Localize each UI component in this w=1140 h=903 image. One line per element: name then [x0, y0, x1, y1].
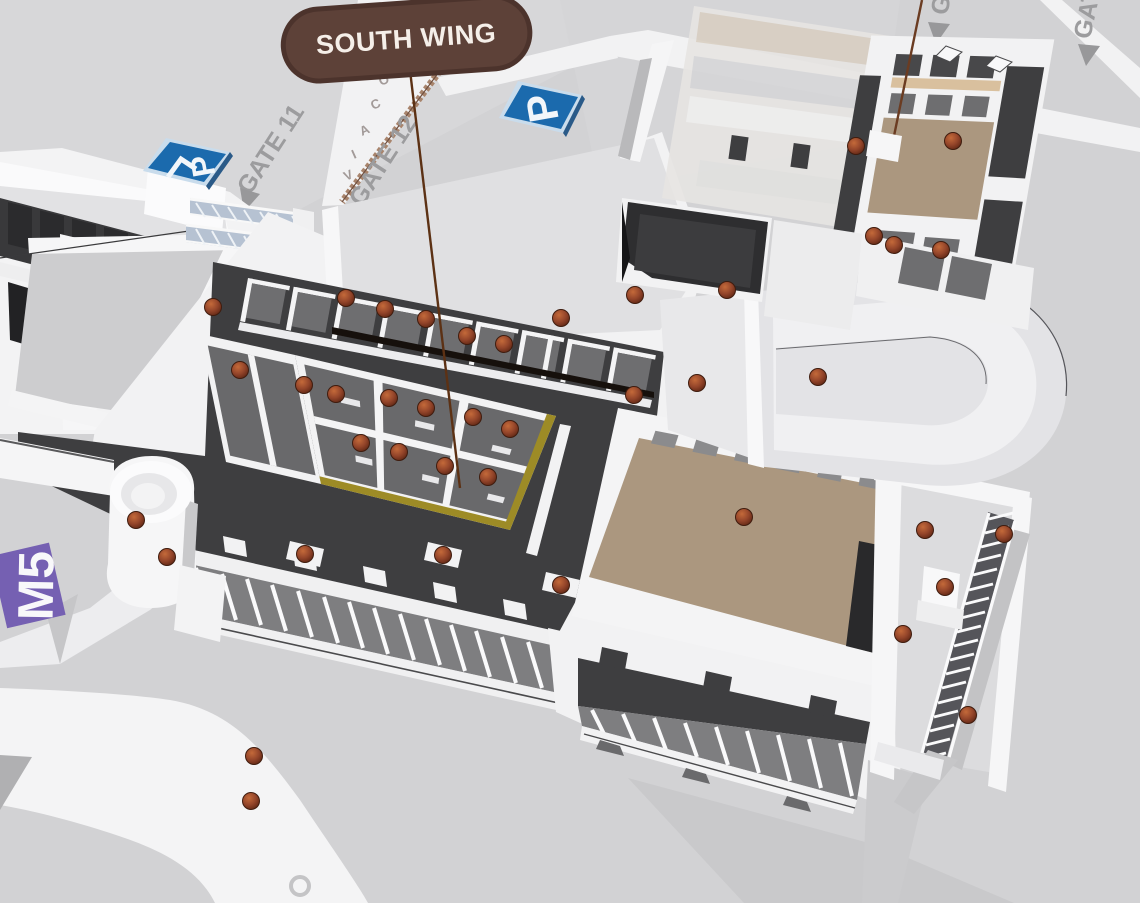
svg-text:M5: M5	[7, 550, 64, 620]
